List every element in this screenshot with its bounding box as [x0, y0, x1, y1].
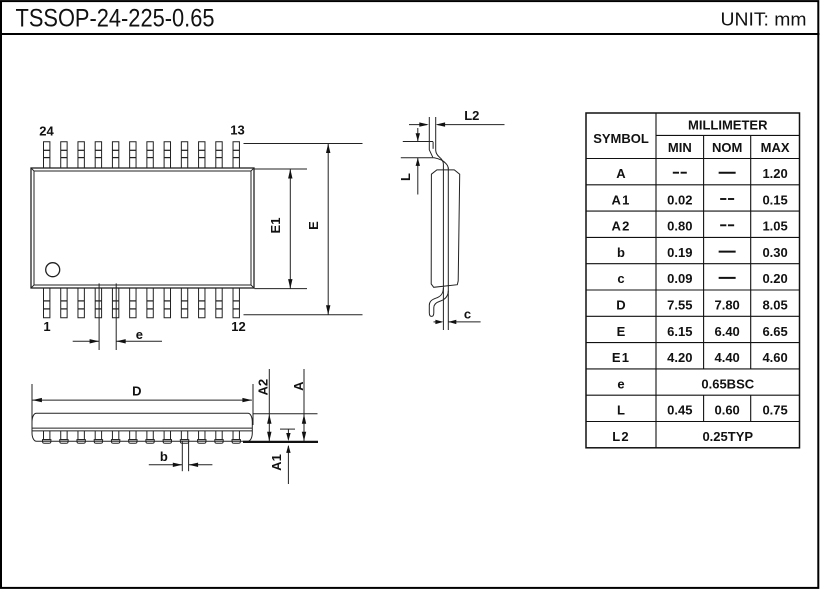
svg-text:A2: A2: [611, 219, 630, 234]
svg-text:8.05: 8.05: [762, 298, 787, 313]
svg-text:E1: E1: [268, 218, 283, 234]
svg-text:24: 24: [39, 124, 54, 139]
svg-text:0.45: 0.45: [667, 403, 692, 418]
svg-text:D: D: [132, 384, 141, 399]
svg-text:13: 13: [230, 123, 244, 138]
svg-text:12: 12: [231, 319, 245, 334]
svg-text:0.09: 0.09: [667, 271, 692, 286]
svg-text:0.60: 0.60: [714, 403, 739, 418]
svg-text:A1: A1: [611, 192, 630, 207]
svg-text:E: E: [617, 324, 626, 339]
svg-text:4.20: 4.20: [667, 350, 692, 365]
svg-text:0.75: 0.75: [762, 403, 787, 418]
svg-text:7.80: 7.80: [714, 298, 739, 313]
svg-text:4.40: 4.40: [714, 350, 739, 365]
svg-text:L2: L2: [464, 108, 479, 123]
svg-text:b: b: [617, 245, 625, 260]
svg-text:0.15: 0.15: [762, 192, 787, 207]
svg-text:UNIT: mm: UNIT: mm: [721, 9, 807, 29]
svg-text:e: e: [617, 376, 624, 391]
svg-text:6.65: 6.65: [762, 324, 787, 339]
svg-text:1.05: 1.05: [762, 219, 787, 234]
svg-text:c: c: [464, 306, 471, 321]
svg-text:6.15: 6.15: [667, 324, 692, 339]
svg-text:L: L: [398, 173, 413, 181]
svg-text:0.02: 0.02: [667, 192, 692, 207]
svg-text:MILLIMETER: MILLIMETER: [688, 118, 768, 133]
svg-text:0.30: 0.30: [762, 245, 787, 260]
svg-text:E: E: [306, 221, 321, 230]
svg-text:c: c: [617, 271, 624, 286]
svg-text:6.40: 6.40: [714, 324, 739, 339]
svg-text:b: b: [160, 449, 168, 464]
svg-text:0.20: 0.20: [762, 271, 787, 286]
svg-text:E1: E1: [612, 350, 630, 365]
svg-text:7.55: 7.55: [667, 298, 692, 313]
svg-text:1.20: 1.20: [762, 166, 787, 181]
svg-text:A2: A2: [256, 379, 271, 396]
svg-text:0.65BSC: 0.65BSC: [701, 376, 754, 391]
svg-text:SYMBOL: SYMBOL: [593, 131, 649, 146]
svg-text:A: A: [616, 166, 626, 181]
svg-text:1: 1: [43, 319, 50, 334]
svg-text:D: D: [616, 298, 625, 313]
svg-text:0.19: 0.19: [667, 245, 692, 260]
svg-text:L2: L2: [612, 429, 630, 444]
svg-text:MAX: MAX: [761, 140, 790, 155]
svg-text:0.80: 0.80: [667, 219, 692, 234]
svg-text:NOM: NOM: [712, 140, 742, 155]
svg-text:4.60: 4.60: [762, 350, 787, 365]
svg-text:0.25TYP: 0.25TYP: [702, 429, 753, 444]
svg-text:A1: A1: [269, 454, 284, 471]
svg-text:L: L: [617, 403, 625, 418]
svg-text:TSSOP-24-225-0.65: TSSOP-24-225-0.65: [16, 4, 215, 32]
svg-text:MIN: MIN: [668, 140, 692, 155]
svg-text:A: A: [291, 381, 306, 391]
svg-text:e: e: [136, 327, 143, 342]
